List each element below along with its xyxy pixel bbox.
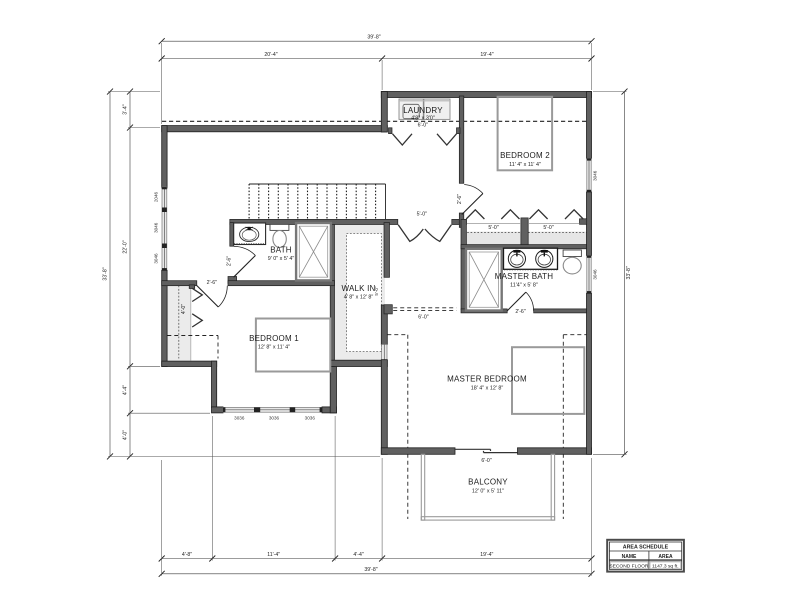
svg-text:3046: 3046 xyxy=(153,253,158,264)
svg-text:9' 0" x 5' 4": 9' 0" x 5' 4" xyxy=(268,256,295,262)
svg-text:2'-6": 2'-6" xyxy=(207,280,217,286)
svg-text:AREA SCHEDULE: AREA SCHEDULE xyxy=(623,545,669,551)
svg-text:4' 8" x 12' 8": 4' 8" x 12' 8" xyxy=(344,295,374,301)
svg-text:4'-4": 4'-4" xyxy=(123,385,129,395)
svg-text:1147.3 sq ft.: 1147.3 sq ft. xyxy=(652,563,679,569)
svg-text:33'-8": 33'-8" xyxy=(626,266,632,279)
svg-text:22'-0": 22'-0" xyxy=(123,240,129,253)
svg-text:12' 8" x 11' 4": 12' 8" x 11' 4" xyxy=(258,345,290,351)
svg-text:33'-8": 33'-8" xyxy=(103,267,109,280)
svg-text:6'-0": 6'-0" xyxy=(481,458,491,464)
svg-text:3046: 3046 xyxy=(593,170,598,181)
svg-text:3046: 3046 xyxy=(153,222,158,233)
svg-text:6'-0": 6'-0" xyxy=(418,314,428,320)
svg-text:WALK IN: WALK IN xyxy=(342,284,376,293)
svg-text:SECOND FLOOR: SECOND FLOOR xyxy=(609,563,649,569)
svg-text:3036: 3036 xyxy=(269,415,280,420)
svg-text:2'-6": 2'-6" xyxy=(515,309,525,315)
svg-text:4'-4": 4'-4" xyxy=(353,552,363,558)
svg-text:5'-0": 5'-0" xyxy=(488,225,498,231)
svg-text:4'-8": 4'-8" xyxy=(182,552,192,558)
svg-text:6'-0": 6'-0" xyxy=(418,123,428,129)
svg-text:11'4" x 5' 8": 11'4" x 5' 8" xyxy=(510,283,538,289)
svg-text:LAUNDRY: LAUNDRY xyxy=(403,106,443,115)
svg-text:11' 4" x 11' 4": 11' 4" x 11' 4" xyxy=(509,162,541,168)
svg-text:BEDROOM 2: BEDROOM 2 xyxy=(500,151,550,160)
svg-text:4'-0": 4'-0" xyxy=(123,430,129,440)
svg-text:MASTER BATH: MASTER BATH xyxy=(495,272,554,281)
svg-text:3036: 3036 xyxy=(305,415,316,420)
svg-text:39'-8": 39'-8" xyxy=(364,567,377,573)
svg-text:BALCONY: BALCONY xyxy=(468,478,508,487)
svg-text:3036: 3036 xyxy=(234,415,245,420)
svg-text:19'-4": 19'-4" xyxy=(480,552,493,558)
svg-text:5'-0": 5'-0" xyxy=(417,212,427,218)
svg-text:4'8" x 3'0": 4'8" x 3'0" xyxy=(411,116,435,122)
svg-text:2'-6": 2'-6" xyxy=(227,256,233,266)
svg-text:BEDROOM 1: BEDROOM 1 xyxy=(249,334,299,343)
svg-text:19'-4": 19'-4" xyxy=(480,52,493,58)
svg-text:3'-4": 3'-4" xyxy=(123,104,129,114)
svg-text:12' 0" x 5' 11": 12' 0" x 5' 11" xyxy=(472,488,504,494)
svg-text:5'-0": 5'-0" xyxy=(374,286,379,296)
svg-text:39'-8": 39'-8" xyxy=(367,35,380,41)
svg-text:MASTER BEDROOM: MASTER BEDROOM xyxy=(447,375,527,384)
svg-text:4'-0": 4'-0" xyxy=(181,304,187,314)
svg-text:11'-4": 11'-4" xyxy=(267,552,280,558)
svg-text:2046: 2046 xyxy=(153,191,158,202)
svg-text:2'-6": 2'-6" xyxy=(457,194,463,204)
svg-text:18' 4" x 12' 8": 18' 4" x 12' 8" xyxy=(471,385,504,391)
svg-text:5'-0": 5'-0" xyxy=(543,225,553,231)
svg-text:NAME: NAME xyxy=(622,554,637,560)
svg-text:20'-4": 20'-4" xyxy=(264,52,277,58)
svg-text:AREA: AREA xyxy=(658,554,673,560)
svg-text:3046: 3046 xyxy=(593,269,598,280)
svg-text:BATH: BATH xyxy=(270,246,292,255)
